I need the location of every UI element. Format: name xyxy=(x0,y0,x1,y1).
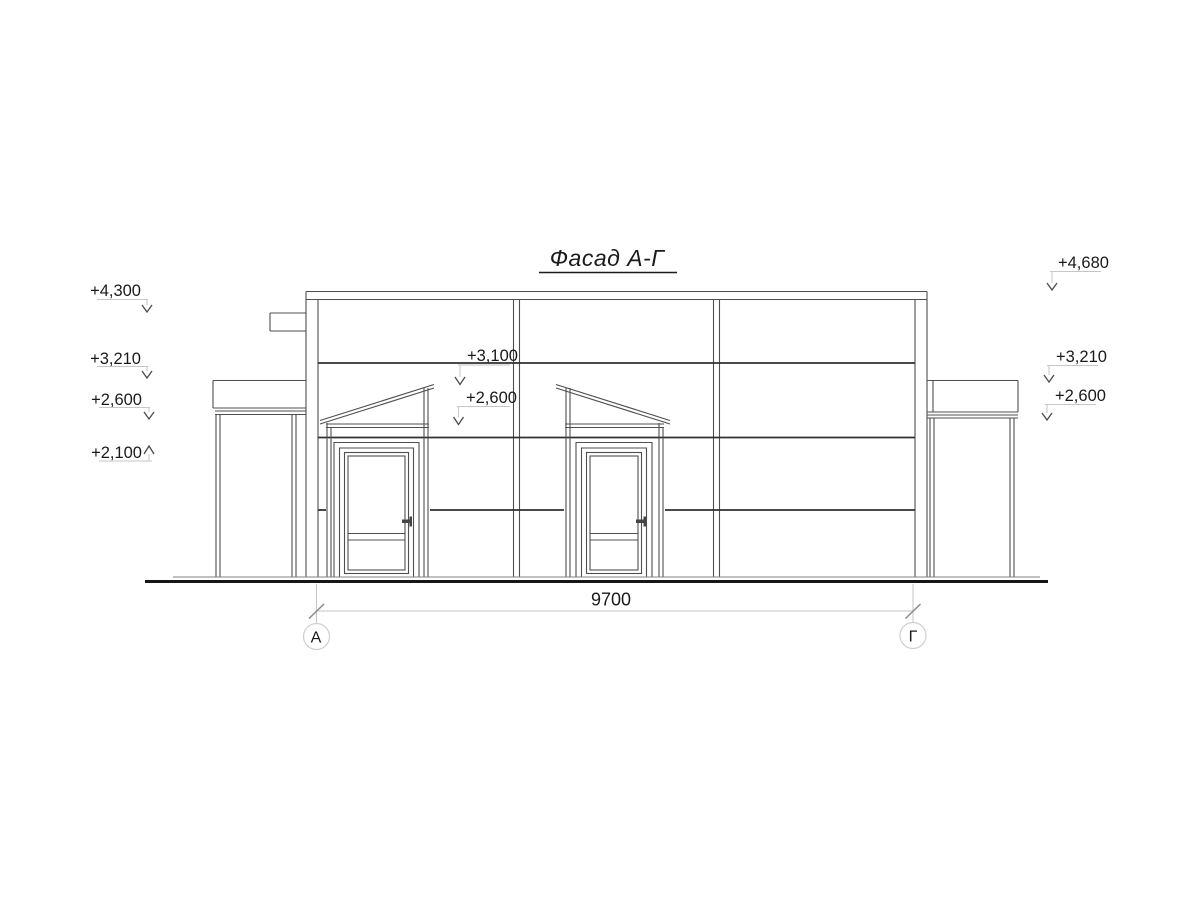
elevation-value: +3,210 xyxy=(1056,348,1107,366)
door-outer-frame xyxy=(576,443,652,578)
facade-drawing-sheet: Фасад А-Г xyxy=(0,0,1200,900)
entrance-door-2 xyxy=(576,443,652,578)
canopy-slope-line xyxy=(556,388,670,424)
elevation-mark-right-3210: +3,210 xyxy=(1044,348,1107,382)
elevation-mark-left-2600: +2,600 xyxy=(91,391,154,419)
entrance-canopy-1 xyxy=(320,385,434,578)
canopy-slope-line xyxy=(320,388,434,424)
door-leaf-inner xyxy=(348,456,405,570)
elevation-arrow-down-icon xyxy=(454,417,464,425)
main-building xyxy=(306,292,927,578)
elevation-arrow-down-icon xyxy=(1047,283,1057,290)
roof-vent-box xyxy=(270,313,306,331)
door-handle-plate xyxy=(644,517,647,527)
ground xyxy=(145,577,1048,582)
left-wing xyxy=(213,381,306,578)
right-wing xyxy=(927,381,1018,578)
elevation-arrow-down-icon xyxy=(144,412,154,419)
elevation-arrow-down-icon xyxy=(1042,413,1052,420)
door-outer-frame xyxy=(334,443,419,578)
door-leaf xyxy=(587,453,642,574)
elevation-value: +4,680 xyxy=(1058,254,1109,272)
elevation-value: +2,600 xyxy=(466,389,517,407)
elevation-arrow-down-icon xyxy=(455,377,465,385)
door-inner-frame xyxy=(582,448,647,577)
door-leaf xyxy=(345,453,409,574)
elevation-value: +4,300 xyxy=(90,282,141,300)
drawing-title: Фасад А-Г xyxy=(550,245,665,271)
axis-label-g: Г xyxy=(909,629,918,646)
elevation-mark-left-3210: +3,210 xyxy=(90,350,152,378)
canopy-slope-line xyxy=(320,385,434,421)
elevation-value: +3,210 xyxy=(90,350,141,368)
entrance-door-1 xyxy=(334,443,419,578)
elevation-value: +2,100 xyxy=(91,444,142,462)
elevation-arrow-down-icon xyxy=(142,305,152,312)
elevation-arrow-up-icon xyxy=(144,446,154,454)
door-handle-plate xyxy=(410,517,413,527)
drawing-header: Фасад А-Г xyxy=(539,245,677,273)
facade-elevation-svg: Фасад А-Г xyxy=(0,0,1200,900)
elevation-value: +2,600 xyxy=(1055,387,1106,405)
door-leaf-inner xyxy=(590,456,638,570)
elevation-mark-middle-3100: +3,100 xyxy=(455,347,518,385)
elevation-arrow-down-icon xyxy=(1044,375,1054,382)
door-inner-frame xyxy=(340,448,414,577)
canopy-slope-line xyxy=(556,385,670,421)
elevation-value: +2,600 xyxy=(91,391,142,409)
axis-label-a: А xyxy=(311,630,322,647)
elevation-arrow-down-icon xyxy=(142,371,152,378)
elevation-mark-middle-2600: +2,600 xyxy=(454,389,517,425)
dimension-value: 9700 xyxy=(591,590,631,610)
elevation-mark-left-4300: +4,300 xyxy=(90,282,152,312)
entrance-canopy-2 xyxy=(556,385,670,578)
elevation-value: +3,100 xyxy=(467,347,518,365)
dimension-a-g: 9700 А Г xyxy=(304,584,927,650)
elevation-mark-left-2100: +2,100 xyxy=(91,444,154,462)
elevation-mark-right-2600: +2,600 xyxy=(1042,387,1106,420)
elevation-mark-right-4680: +4,680 xyxy=(1047,254,1109,290)
